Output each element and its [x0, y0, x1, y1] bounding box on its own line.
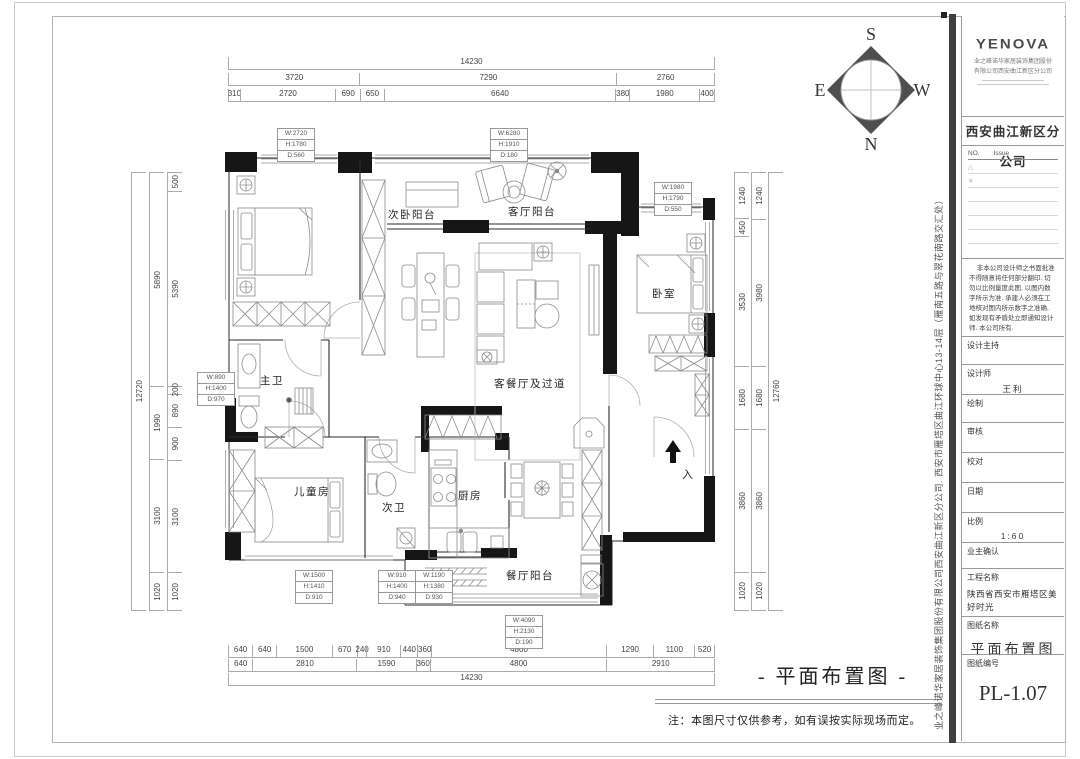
dim-right-inner: 12404503530168038601020 — [734, 172, 749, 611]
compass-rose: S E W N — [812, 24, 930, 152]
dim-right-mid: 12403980168038601020 — [751, 172, 766, 611]
doors — [285, 302, 694, 473]
window-tag-1: W:2720H:1780D:560 — [277, 128, 315, 162]
logo-section: YENOVA 业之峰诺华家居装饰集团股份 有限公司西安曲江新区分公司 — [962, 16, 1064, 116]
room-label-second-bath: 次卫 — [382, 500, 406, 515]
title-block-bar — [949, 14, 956, 743]
room-label-dining-balcony: 餐厅阳台 — [506, 568, 554, 583]
dim-top-row3: 310272069065066403801980400 — [228, 89, 715, 102]
contact-line-2 — [977, 84, 1049, 85]
room-label-kids-room: 儿童房 — [294, 484, 330, 499]
field-drawing-number: 图纸编号 PL-1.07 — [962, 654, 1064, 741]
wardrobe-secondary — [233, 302, 330, 326]
window-tag-2: W:6280H:1910D:180 — [490, 128, 528, 162]
room-label-kitchen: 厨房 — [458, 488, 482, 503]
window-tag-7: W:1190H:1380D:930 — [415, 570, 453, 604]
issue-row — [968, 216, 1058, 230]
field-designer: 设计师 王利 — [962, 364, 1064, 394]
room-label-bedroom: 卧室 — [652, 286, 676, 301]
kids-wardrobe — [229, 427, 323, 532]
issue-table: NO. Issue △ ✕ — [962, 146, 1064, 258]
window-tag-6: W:910H:1400D:940 — [378, 570, 416, 604]
title-block-square — [941, 12, 947, 18]
drawing-note: 注：本图尺寸仅供参考，如有误按实际现场而定。 — [668, 712, 921, 728]
compass-north: N — [865, 134, 878, 152]
company-name: 业之峰诺华家居装饰集团股份 有限公司西安曲江新区分公司 — [962, 58, 1064, 77]
living-room — [475, 243, 599, 460]
issue-row: ✕ — [968, 174, 1058, 188]
issue-header: NO. Issue — [968, 150, 1058, 160]
entry-arrow-icon — [665, 440, 681, 463]
issue-row — [968, 188, 1058, 202]
window-tag-3: W:1980H:1790D:550 — [654, 182, 692, 216]
second-bath-fixtures — [367, 440, 415, 548]
issue-row — [968, 230, 1058, 244]
company-side-text: 业之峰诺华家居装饰集团股份有限公司西安曲江新区分公司. 西安市雁塔区曲江环球中心… — [932, 90, 945, 730]
contact-line-1 — [982, 80, 1044, 81]
tall-cabinet — [582, 450, 602, 550]
cabinet-column — [362, 180, 385, 355]
compass-west: W — [914, 80, 931, 100]
room-label-secondary-balcony: 次卧阳台 — [388, 207, 436, 222]
issue-row: △ — [968, 160, 1058, 174]
dim-top-row2: 372072902760 — [228, 73, 715, 86]
title-rule-1 — [655, 699, 941, 700]
room-label-living-dining: 客餐厅及过道 — [494, 376, 566, 391]
fridge — [574, 418, 604, 448]
bedroom-right — [637, 234, 709, 416]
dim-right-total: 12760 — [768, 172, 783, 611]
room-label-living-balcony: 客厅阳台 — [508, 204, 556, 219]
branch-title: 西安曲江新区分公司 — [962, 116, 1064, 146]
dim-bottom-total: 14230 — [228, 673, 715, 686]
field-date: 日期 — [962, 482, 1064, 512]
title-block: YENOVA 业之峰诺华家居装饰集团股份 有限公司西安曲江新区分公司 西安曲江新… — [961, 16, 1064, 741]
field-scale: 比例 1:60 — [962, 512, 1064, 542]
issue-row — [968, 202, 1058, 216]
dim-bottom-row2: 6402810159036048002910 — [228, 659, 715, 672]
compass-east: E — [815, 80, 826, 100]
drawing-title: - 平面布置图 - — [716, 660, 950, 689]
dim-left-mid: 5890199031001020 — [149, 172, 164, 611]
field-drawn-by: 绘制 — [962, 394, 1064, 422]
dining-set — [511, 462, 573, 518]
dim-top-total: 14230 — [228, 57, 715, 70]
dim-bottom-row1: 6406401500670240910440360480012901100520 — [228, 645, 715, 658]
room-label-master-bath: 主卫 — [260, 373, 284, 388]
bed-secondary — [238, 208, 312, 275]
dim-left-inner: 500539020089090031001020 — [167, 172, 182, 611]
room-label-entrance: 入 — [682, 466, 695, 482]
wall-piers — [225, 152, 715, 605]
hall-closet — [425, 415, 501, 439]
compass-south: S — [866, 24, 876, 44]
copyright-notice: 非本公司设计师之书面批准不得随意将任何部分翻印. 切勿以比例量度此图, 以图内数… — [962, 258, 1064, 336]
kitchen-fixtures — [429, 450, 509, 558]
dim-left-total: 12720 — [131, 172, 146, 611]
balcony-chairs — [475, 162, 566, 203]
window-tag-5: W:1500H:1410D:910 — [295, 570, 333, 604]
window-tag-4: W:890H:1400D:970 — [197, 372, 235, 406]
field-project-name: 工程名称 陕西省西安市雁塔区美好时光 — [962, 568, 1064, 616]
field-reviewer: 审核 — [962, 422, 1064, 452]
window-tag-8: W:4090H:2130D:190 — [505, 615, 543, 649]
yenova-logo: YENOVA — [962, 37, 1064, 53]
field-proofread: 校对 — [962, 452, 1064, 482]
floor-plan — [225, 150, 717, 612]
title-rule-2 — [655, 703, 941, 704]
field-design-director: 设计主持 — [962, 336, 1064, 364]
field-drawing-name: 图纸名称 平面布置图 — [962, 616, 1064, 654]
field-owner-confirm: 业主确认 — [962, 542, 1064, 568]
